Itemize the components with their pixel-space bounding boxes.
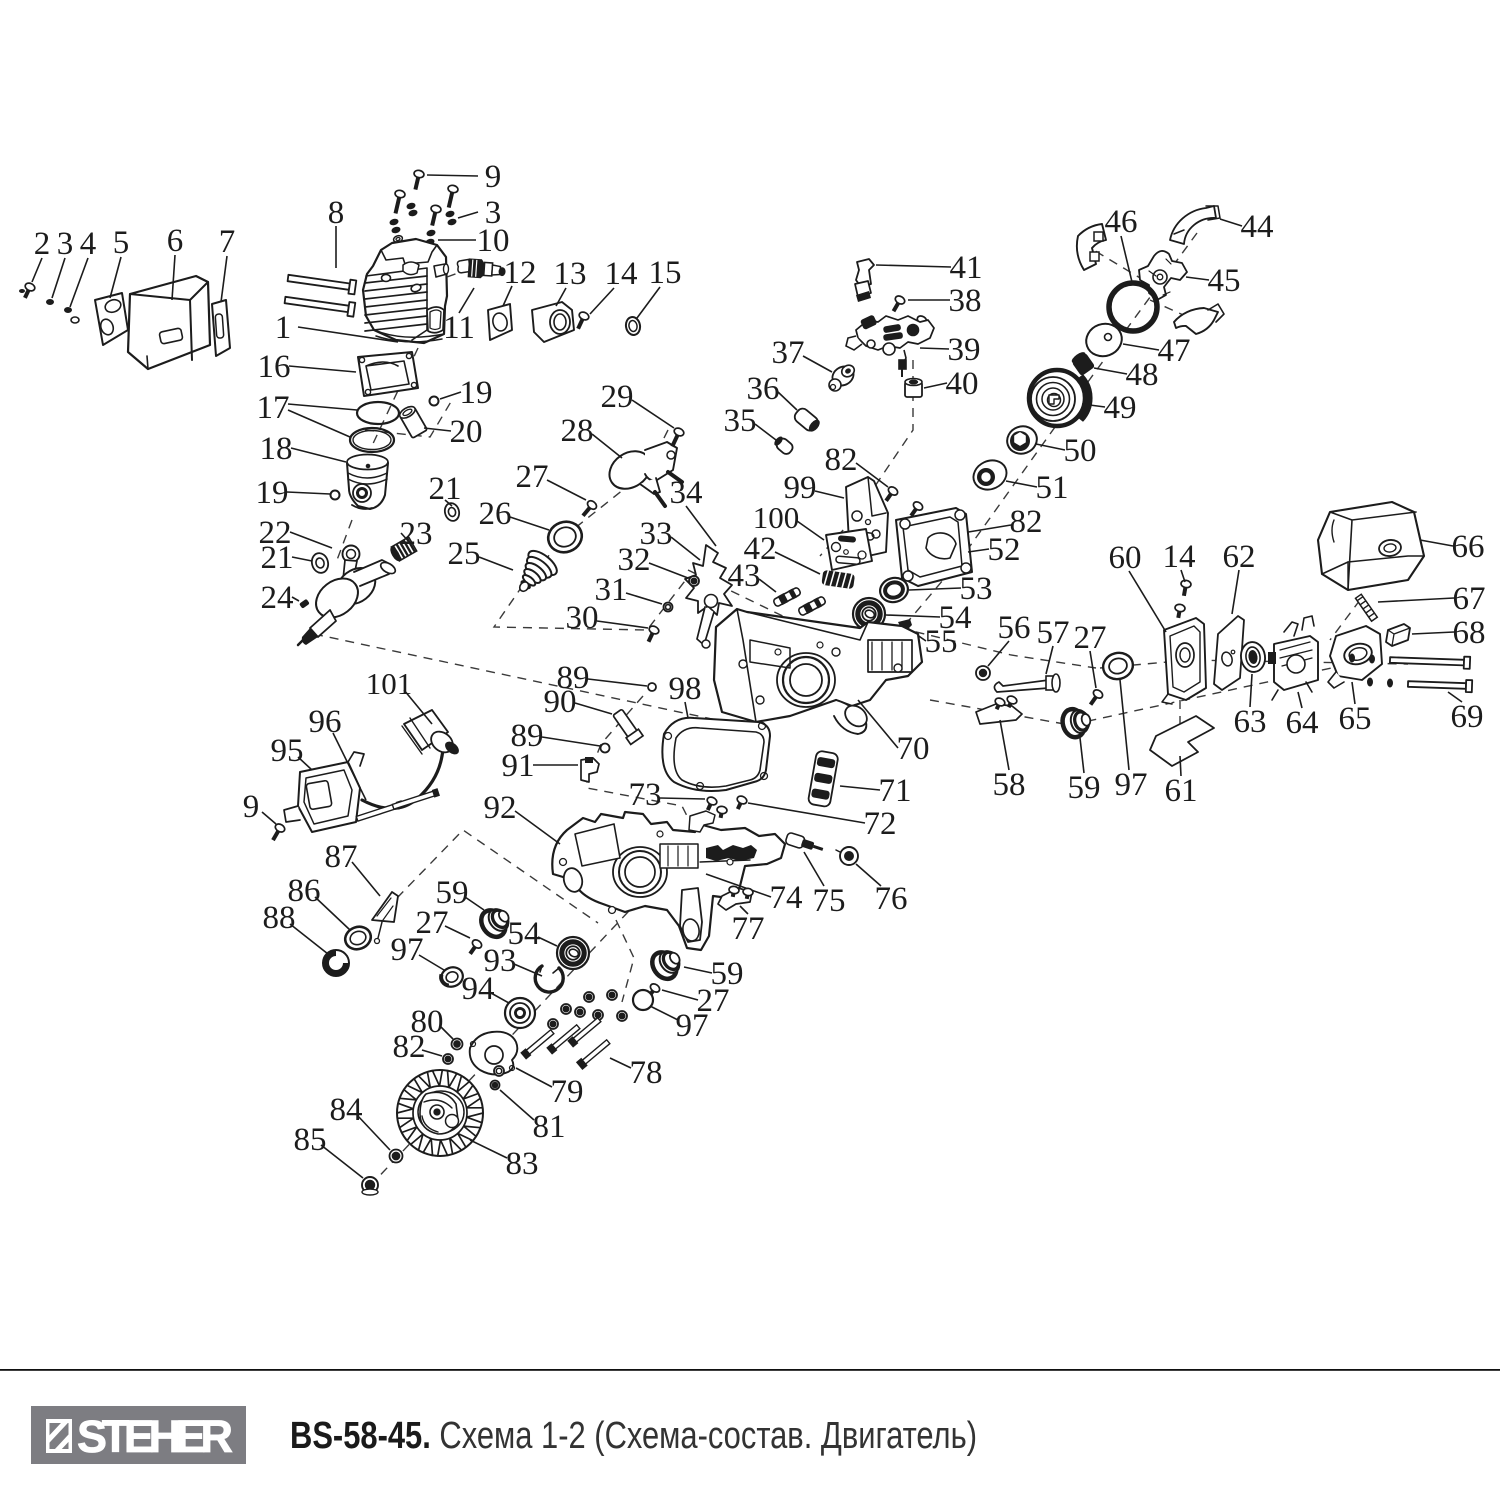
- svg-text:96: 96: [309, 704, 342, 740]
- svg-text:69: 69: [1451, 699, 1484, 735]
- svg-text:3: 3: [57, 226, 74, 262]
- svg-text:34: 34: [670, 475, 703, 511]
- svg-text:18: 18: [260, 431, 293, 467]
- svg-text:62: 62: [1223, 539, 1256, 575]
- svg-text:40: 40: [946, 366, 979, 402]
- svg-text:37: 37: [772, 335, 805, 371]
- svg-text:68: 68: [1453, 615, 1486, 651]
- svg-text:36: 36: [747, 371, 780, 407]
- svg-text:7: 7: [219, 224, 236, 260]
- svg-text:30: 30: [566, 600, 599, 636]
- svg-text:20: 20: [450, 414, 483, 450]
- svg-text:85: 85: [294, 1122, 327, 1158]
- svg-text:58: 58: [993, 767, 1026, 803]
- svg-text:61: 61: [1165, 773, 1198, 809]
- svg-text:71: 71: [879, 773, 912, 809]
- svg-text:9: 9: [243, 789, 260, 825]
- svg-text:97: 97: [391, 932, 424, 968]
- svg-text:11: 11: [443, 310, 475, 346]
- svg-text:STEHER: STEHER: [77, 1411, 233, 1462]
- svg-text:29: 29: [601, 379, 634, 415]
- svg-text:25: 25: [448, 536, 481, 572]
- svg-text:2: 2: [34, 226, 51, 262]
- svg-text:19: 19: [256, 475, 289, 511]
- svg-text:14: 14: [605, 256, 638, 292]
- svg-text:41: 41: [950, 250, 983, 286]
- svg-text:98: 98: [669, 671, 702, 707]
- svg-text:6: 6: [167, 223, 184, 259]
- svg-text:17: 17: [257, 390, 290, 426]
- svg-text:16: 16: [258, 349, 291, 385]
- svg-text:86: 86: [288, 873, 321, 909]
- svg-text:31: 31: [595, 572, 628, 608]
- svg-text:44: 44: [1241, 209, 1274, 245]
- svg-text:45: 45: [1208, 263, 1241, 299]
- svg-text:1: 1: [275, 310, 292, 346]
- svg-text:101: 101: [366, 666, 413, 701]
- svg-text:79: 79: [551, 1074, 584, 1110]
- svg-text:52: 52: [988, 532, 1021, 568]
- svg-text:82: 82: [393, 1029, 426, 1065]
- svg-text:51: 51: [1036, 470, 1069, 506]
- svg-text:10: 10: [477, 223, 510, 259]
- svg-text:72: 72: [864, 806, 897, 842]
- svg-text:BS-58-45. Схема 1-2 (Схема-сос: BS-58-45. Схема 1-2 (Схема-состав. Двига…: [290, 1415, 977, 1457]
- svg-text:100: 100: [753, 500, 800, 535]
- svg-text:46: 46: [1105, 204, 1138, 240]
- svg-text:65: 65: [1339, 701, 1372, 737]
- svg-text:87: 87: [325, 839, 358, 875]
- svg-text:91: 91: [502, 748, 535, 784]
- svg-text:90: 90: [544, 684, 577, 720]
- svg-text:97: 97: [676, 1008, 709, 1044]
- svg-text:14: 14: [1163, 539, 1196, 575]
- svg-text:47: 47: [1158, 333, 1191, 369]
- svg-text:55: 55: [925, 624, 958, 660]
- svg-text:15: 15: [649, 255, 682, 291]
- svg-text:26: 26: [479, 496, 512, 532]
- svg-text:38: 38: [949, 283, 982, 319]
- svg-text:13: 13: [554, 256, 587, 292]
- svg-text:67: 67: [1453, 581, 1486, 617]
- svg-text:84: 84: [330, 1092, 363, 1128]
- svg-text:81: 81: [533, 1109, 566, 1145]
- svg-text:56: 56: [998, 610, 1031, 646]
- svg-text:19: 19: [460, 375, 493, 411]
- svg-text:77: 77: [732, 911, 765, 947]
- svg-text:59: 59: [1068, 770, 1101, 806]
- svg-text:92: 92: [484, 790, 517, 826]
- svg-text:21: 21: [261, 540, 294, 576]
- svg-text:48: 48: [1126, 357, 1159, 393]
- svg-text:97: 97: [1115, 767, 1148, 803]
- svg-text:12: 12: [504, 255, 537, 291]
- svg-text:73: 73: [629, 777, 662, 813]
- svg-text:43: 43: [728, 558, 761, 594]
- svg-text:75: 75: [813, 883, 846, 919]
- svg-text:50: 50: [1064, 433, 1097, 469]
- svg-text:57: 57: [1037, 615, 1070, 651]
- svg-text:28: 28: [561, 413, 594, 449]
- svg-text:64: 64: [1286, 705, 1319, 741]
- svg-text:76: 76: [875, 881, 908, 917]
- svg-text:70: 70: [897, 731, 930, 767]
- svg-text:21: 21: [429, 471, 462, 507]
- svg-text:8: 8: [328, 195, 345, 231]
- svg-text:24: 24: [261, 580, 294, 616]
- svg-text:60: 60: [1109, 540, 1142, 576]
- svg-text:27: 27: [1074, 620, 1107, 656]
- svg-text:5: 5: [113, 225, 130, 261]
- svg-text:4: 4: [80, 226, 97, 262]
- svg-text:94: 94: [462, 971, 495, 1007]
- svg-text:35: 35: [724, 403, 757, 439]
- svg-text:49: 49: [1104, 390, 1137, 426]
- svg-text:63: 63: [1234, 704, 1267, 740]
- svg-text:23: 23: [400, 516, 433, 552]
- svg-text:83: 83: [506, 1146, 539, 1182]
- svg-text:39: 39: [948, 332, 981, 368]
- svg-text:27: 27: [516, 459, 549, 495]
- svg-text:66: 66: [1452, 529, 1485, 565]
- svg-text:82: 82: [825, 442, 858, 478]
- svg-text:78: 78: [630, 1055, 663, 1091]
- svg-text:9: 9: [485, 159, 502, 195]
- svg-text:95: 95: [271, 733, 304, 769]
- svg-text:74: 74: [770, 880, 803, 916]
